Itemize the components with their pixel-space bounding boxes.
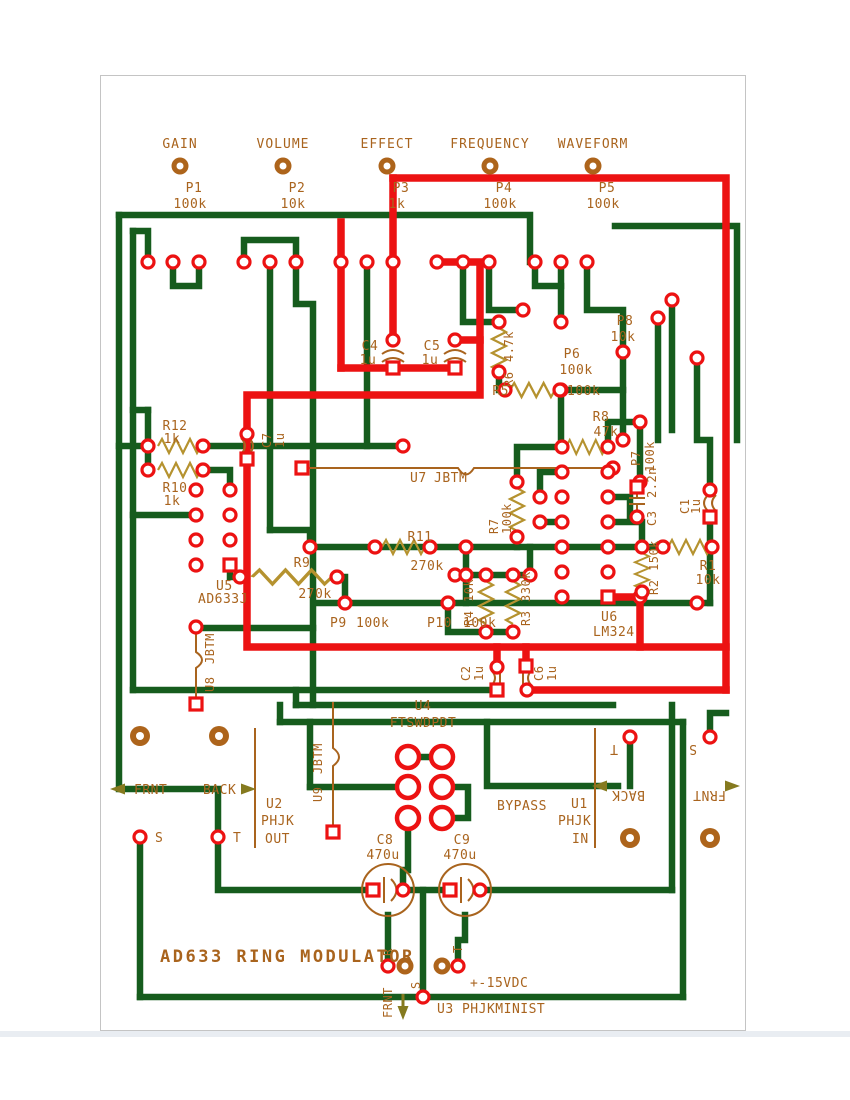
c6-ref: C6 bbox=[532, 666, 546, 681]
r8-ref: R8 bbox=[593, 410, 610, 425]
p5-value: 100k bbox=[586, 197, 619, 212]
c4-value: 1u bbox=[360, 353, 377, 368]
tip-right-label: T bbox=[610, 741, 618, 756]
p8-ref: P8 bbox=[617, 314, 634, 329]
p2-ref: P2 bbox=[289, 181, 306, 196]
u8-part: JBTM bbox=[203, 633, 217, 664]
p4-value: 100k bbox=[483, 197, 516, 212]
board-title: AD633 RING MODULATOR bbox=[160, 947, 415, 967]
u1-part: PHJK bbox=[558, 814, 591, 829]
r12-value: 1k bbox=[164, 432, 181, 447]
p5-ref: P5 bbox=[599, 181, 616, 196]
u9-part: JBTM bbox=[311, 743, 325, 774]
u1-in: IN bbox=[572, 832, 589, 847]
u4-part: FTSWDPDT bbox=[390, 716, 457, 731]
pot-frequency-label: FREQUENCY bbox=[450, 137, 529, 152]
u2-ref: U2 bbox=[266, 797, 283, 812]
u7-ref: U7 bbox=[410, 471, 427, 486]
r5-value: 100k bbox=[567, 384, 600, 399]
p3-ref: P3 bbox=[393, 181, 410, 196]
p10-ref: P10 bbox=[427, 616, 452, 631]
pot-gain-label: GAIN bbox=[162, 137, 197, 152]
c5-value: 1u bbox=[422, 353, 439, 368]
p3-value: 1k bbox=[389, 197, 406, 212]
c4-ref: C4 bbox=[362, 339, 379, 354]
c3-ref: C3 bbox=[645, 511, 659, 526]
c8-value: 470u bbox=[366, 848, 399, 863]
r10-value: 1k bbox=[164, 494, 181, 509]
p9-value: 100k bbox=[356, 616, 389, 631]
sleeve-left-label: S bbox=[155, 831, 163, 846]
p9-ref: P9 bbox=[330, 616, 347, 631]
r9-ref: R9 bbox=[294, 556, 311, 571]
power-label: +-15VDC bbox=[470, 976, 528, 991]
c8-ref: C8 bbox=[377, 833, 394, 848]
u8-ref: U8 bbox=[203, 677, 217, 692]
p4-ref: P4 bbox=[496, 181, 513, 196]
tip-left-label: T bbox=[233, 831, 241, 846]
frnt-bottom-label: FRNT bbox=[381, 987, 395, 1018]
u4-ref: U4 bbox=[415, 699, 432, 714]
r8-value: 47k bbox=[594, 425, 619, 440]
r3-value: 330k bbox=[519, 571, 533, 602]
c1-value: 1u bbox=[689, 499, 703, 514]
sleeve-bottom-label: S bbox=[409, 981, 423, 989]
r6-value: 4.7k bbox=[502, 331, 516, 362]
u6-ref: U6 bbox=[601, 610, 618, 625]
r2-value: 150k bbox=[647, 540, 661, 571]
pcb-layout-canvas: GAIN VOLUME EFFECT FREQUENCY WAVEFORM P1… bbox=[0, 0, 850, 1100]
c2-value: 1u bbox=[472, 666, 486, 681]
r1-ref: R1 bbox=[700, 559, 717, 574]
pot-effect-label: EFFECT bbox=[361, 137, 414, 152]
pot-volume-label: VOLUME bbox=[257, 137, 310, 152]
p1-ref: P1 bbox=[186, 181, 203, 196]
r4-value: 10k bbox=[462, 579, 476, 602]
c7-value: 1u bbox=[273, 433, 287, 448]
pot-waveform-label: WAVEFORM bbox=[558, 137, 629, 152]
c6-value: 1u bbox=[545, 666, 559, 681]
u6-part: LM324 bbox=[593, 625, 635, 640]
p6-value: 100k bbox=[559, 363, 592, 378]
p2-value: 10k bbox=[281, 197, 306, 212]
u5-part: AD633J bbox=[198, 592, 248, 607]
r7-value: 100k bbox=[500, 503, 514, 534]
p6-ref: P6 bbox=[564, 347, 581, 362]
u3-connector-label: U3 PHJKMINIST bbox=[437, 1002, 545, 1017]
p8-value: 10k bbox=[611, 330, 636, 345]
back-left-label: BACK bbox=[203, 783, 236, 798]
tip-bottom-label: T bbox=[451, 945, 465, 953]
r3-ref: R3 bbox=[519, 611, 533, 626]
p7-value: 100k bbox=[643, 441, 657, 472]
u2-out: OUT bbox=[265, 832, 290, 847]
r6-ref: R6 bbox=[502, 372, 516, 387]
r11-value: 270k bbox=[410, 559, 443, 574]
c7-ref: C7 bbox=[260, 433, 274, 448]
u7-part: JBTM bbox=[434, 471, 467, 486]
bypass-label: BYPASS bbox=[497, 799, 547, 814]
sleeve-right-label: S bbox=[689, 741, 697, 756]
pcb-screenshot: GAIN VOLUME EFFECT FREQUENCY WAVEFORM P1… bbox=[0, 0, 850, 1100]
back-right-label: BACK bbox=[612, 787, 645, 802]
r7-ref: R7 bbox=[487, 519, 501, 534]
c5-ref: C5 bbox=[424, 339, 441, 354]
page-bottom-edge bbox=[0, 1031, 850, 1037]
c9-ref: C9 bbox=[454, 833, 471, 848]
r2-ref: R2 bbox=[647, 580, 661, 595]
p7-ref: P7 bbox=[629, 451, 643, 466]
frnt-left-label: FRNT bbox=[134, 783, 167, 798]
r1-value: 10k bbox=[696, 573, 721, 588]
r9-value: 270k bbox=[298, 587, 331, 602]
r11-ref: R11 bbox=[408, 530, 433, 545]
c9-value: 470u bbox=[443, 848, 476, 863]
u1-ref: U1 bbox=[571, 797, 588, 812]
c2-ref: C2 bbox=[459, 666, 473, 681]
u9-ref: U9 bbox=[311, 787, 325, 802]
p10-value: 100k bbox=[463, 616, 496, 631]
u2-part: PHJK bbox=[261, 814, 294, 829]
p1-value: 100k bbox=[173, 197, 206, 212]
frnt-right-label: FRNT bbox=[693, 787, 726, 802]
